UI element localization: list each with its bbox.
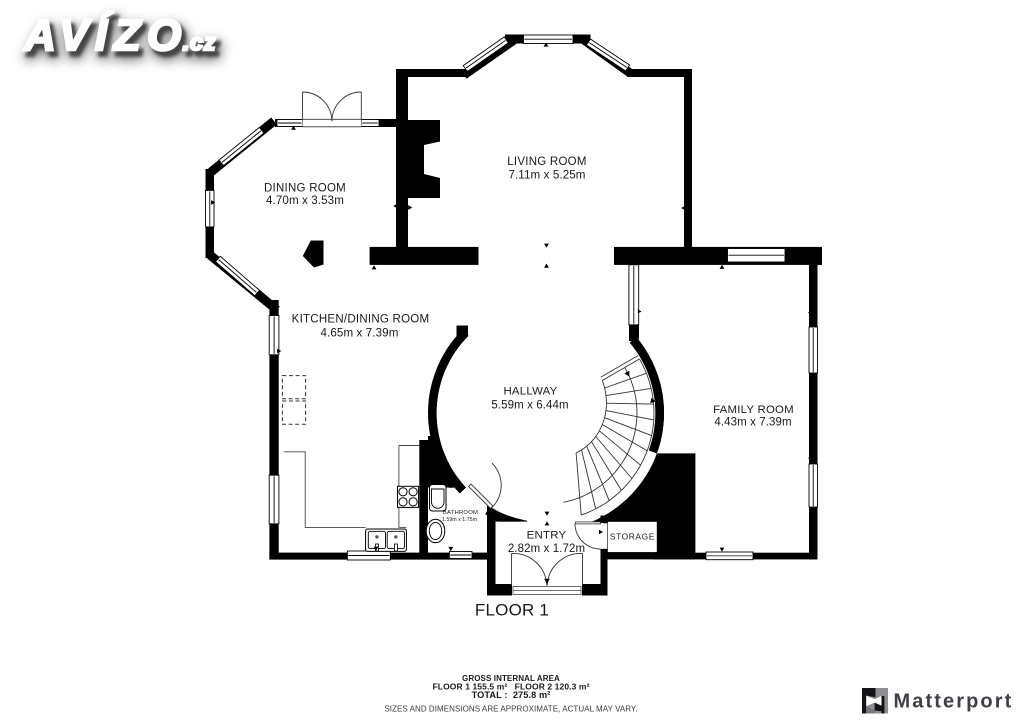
svg-text:2.82m x 1.72m: 2.82m x 1.72m: [508, 543, 585, 555]
svg-text:5.59m x 6.44m: 5.59m x 6.44m: [491, 400, 568, 412]
svg-text:SIZES AND DIMENSIONS ARE APPRO: SIZES AND DIMENSIONS ARE APPROXIMATE, AC…: [384, 705, 637, 714]
svg-text:LIVING ROOM: LIVING ROOM: [507, 156, 586, 168]
svg-text:TOTAL : 275.8 m²: TOTAL : 275.8 m²: [472, 690, 551, 700]
svg-text:STORAGE: STORAGE: [610, 532, 655, 542]
svg-text:4.70m x 3.53m: 4.70m x 3.53m: [266, 194, 344, 207]
svg-text:7.11m x 5.25m: 7.11m x 5.25m: [508, 169, 585, 182]
svg-text:4.43m x 7.39m: 4.43m x 7.39m: [714, 417, 791, 429]
svg-text:BATHROOM: BATHROOM: [443, 510, 478, 516]
svg-text:KITCHEN/DINING ROOM: KITCHEN/DINING ROOM: [292, 314, 430, 326]
svg-text:ENTRY: ENTRY: [527, 530, 567, 542]
svg-text:FLOOR 1: FLOOR 1: [475, 601, 549, 620]
svg-text:Matterport: Matterport: [894, 691, 1014, 713]
svg-text:4.65m x 7.39m: 4.65m x 7.39m: [321, 327, 399, 340]
svg-text:HALLWAY: HALLWAY: [503, 386, 557, 398]
svg-text:FAMILY ROOM: FAMILY ROOM: [713, 404, 794, 416]
svg-text:1.59m x 1.75m: 1.59m x 1.75m: [442, 517, 478, 523]
svg-text:DINING ROOM: DINING ROOM: [264, 183, 346, 195]
